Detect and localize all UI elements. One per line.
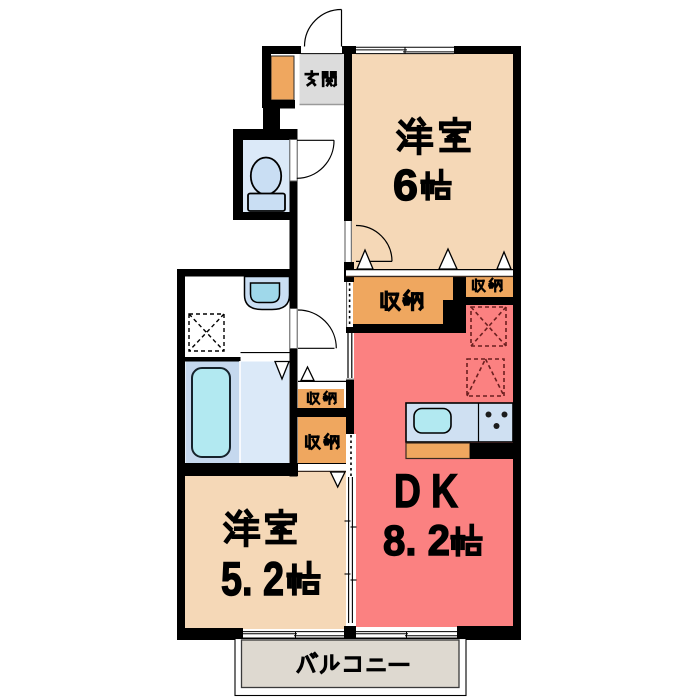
svg-text:5. 2: 5. 2 xyxy=(221,552,284,605)
svg-text:6: 6 xyxy=(393,161,418,210)
svg-text:8. 2: 8. 2 xyxy=(383,517,450,565)
svg-text:D K: D K xyxy=(394,464,458,517)
